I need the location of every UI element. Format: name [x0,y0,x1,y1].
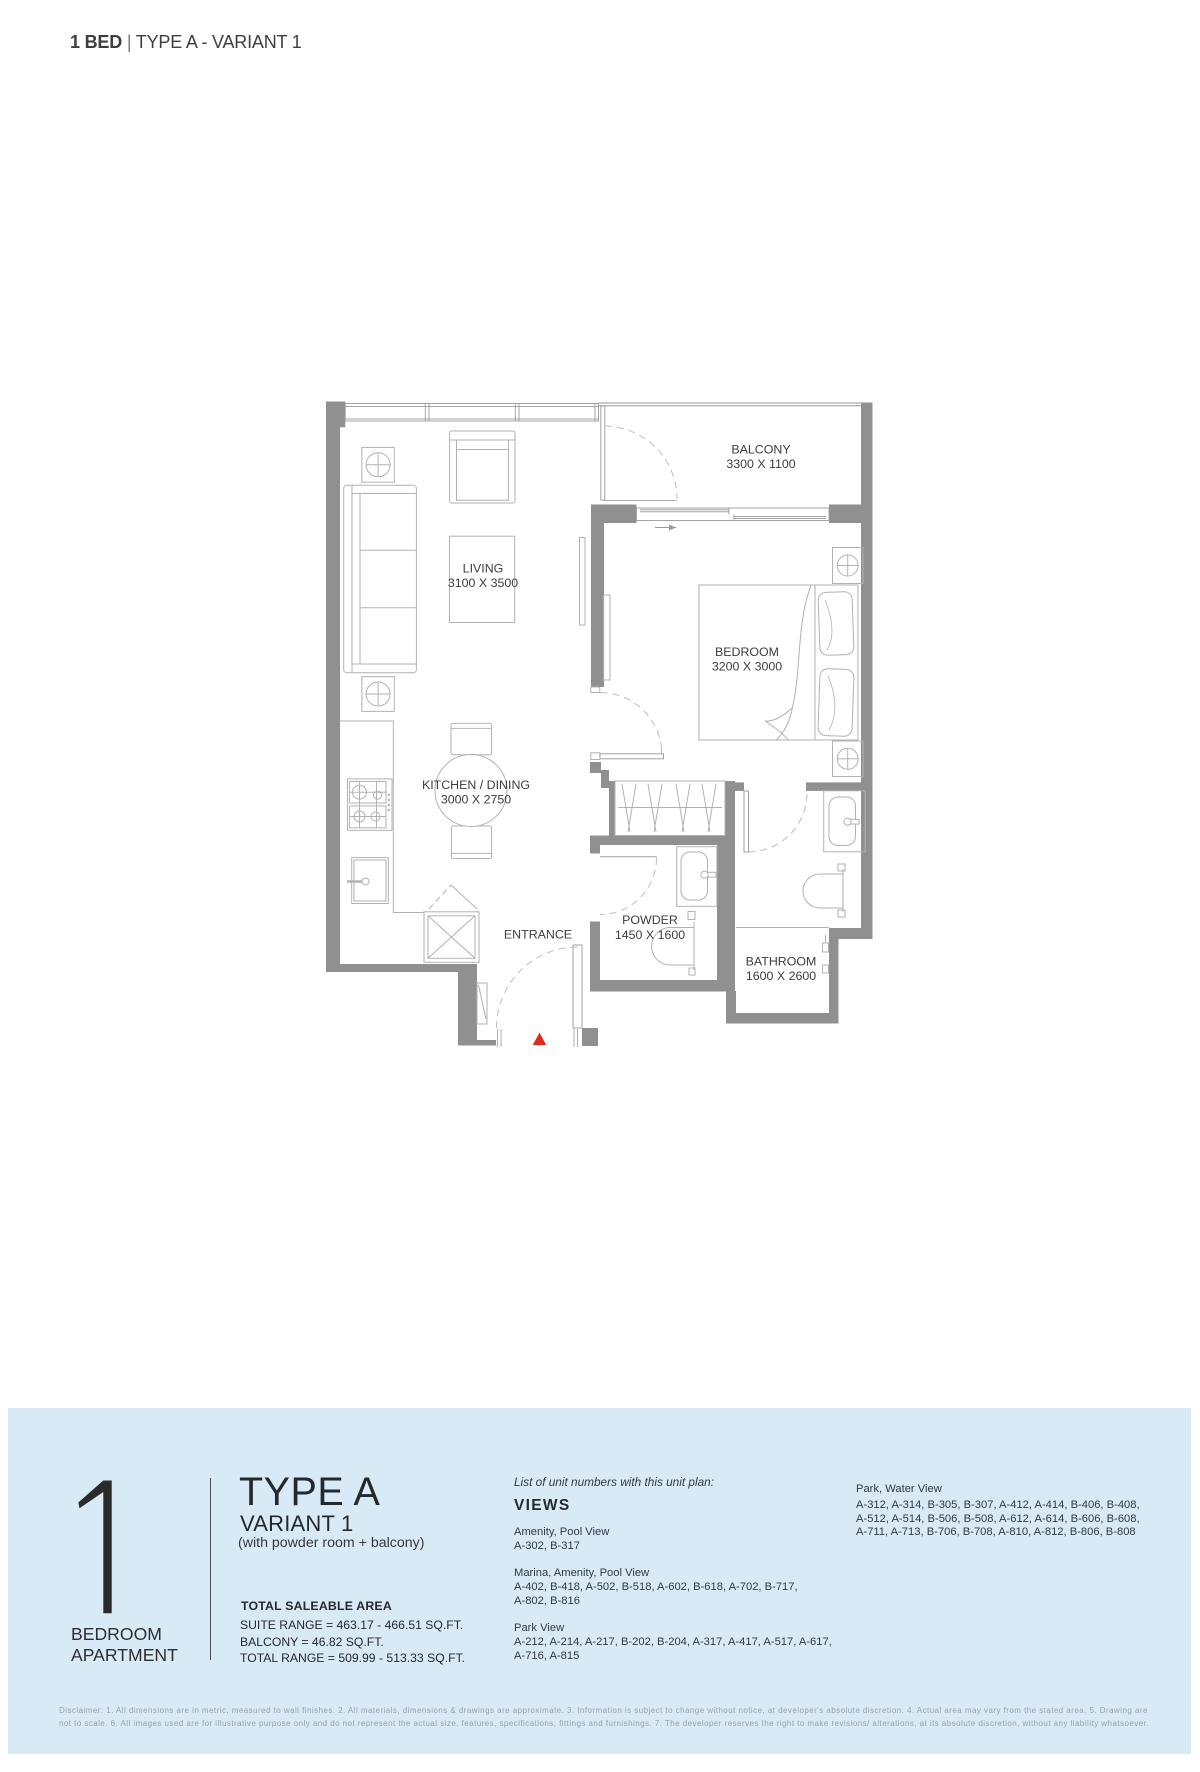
svg-text:3200 X 3000: 3200 X 3000 [712,659,782,673]
svg-text:3100 X 3500: 3100 X 3500 [448,576,518,590]
svg-text:ENTRANCE: ENTRANCE [504,928,572,942]
svg-text:3000 X 2750: 3000 X 2750 [441,792,511,806]
svg-text:3300 X 1100: 3300 X 1100 [726,457,795,471]
svg-text:1600 X 2600: 1600 X 2600 [746,969,816,983]
svg-text:LIVING: LIVING [463,562,504,576]
svg-text:KITCHEN / DINING: KITCHEN / DINING [422,778,530,792]
svg-text:BALCONY: BALCONY [731,443,790,457]
svg-text:BEDROOM: BEDROOM [715,645,779,659]
svg-text:POWDER: POWDER [622,913,678,927]
svg-text:BATHROOM: BATHROOM [746,955,817,969]
svg-text:1450 X 1600: 1450 X 1600 [615,928,685,942]
